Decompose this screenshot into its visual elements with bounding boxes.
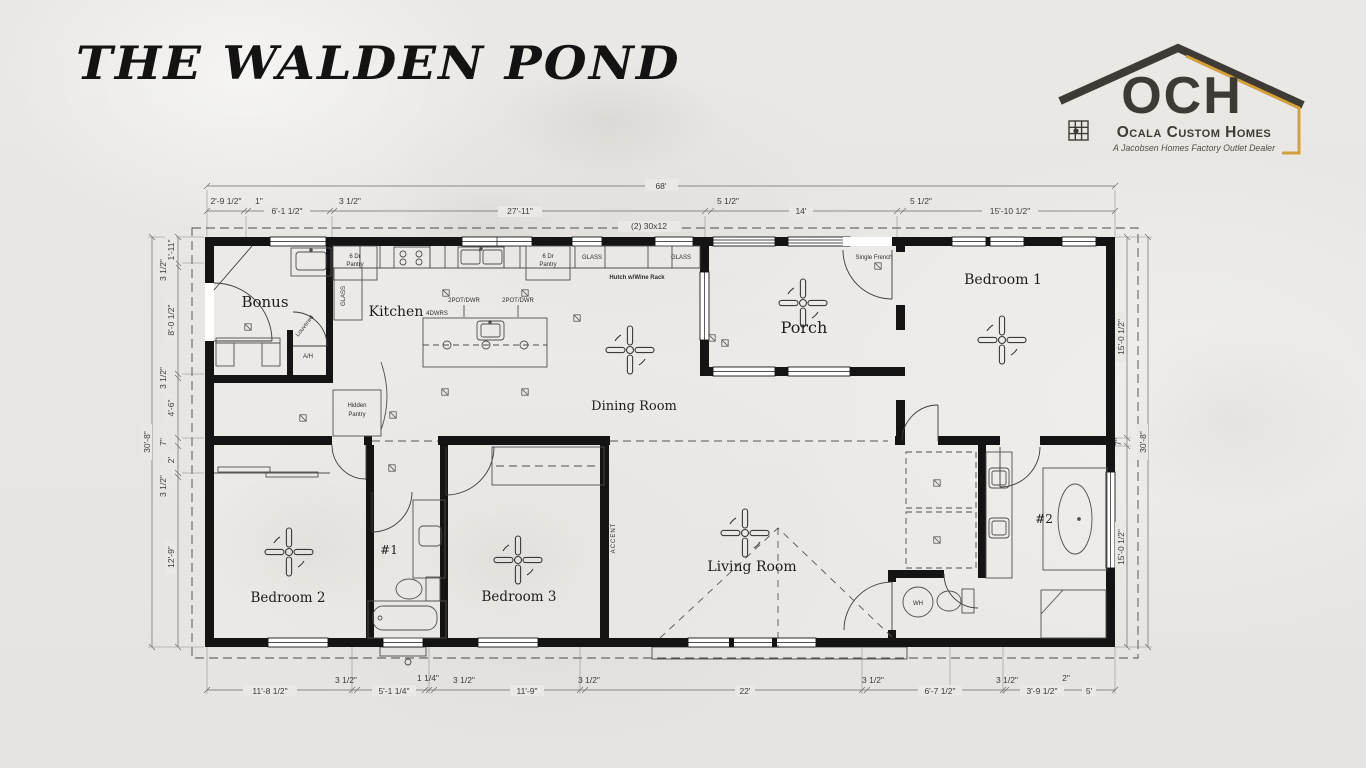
label-accent-wall: ACCENT xyxy=(611,523,617,554)
dim-left-4: 4'-6" xyxy=(166,400,176,417)
dim-bottom-2: 5'-1 1/4" xyxy=(378,686,409,696)
dim-bottom-1: 3 1/2" xyxy=(335,675,357,685)
dim-bottom-3: 1 1/4" xyxy=(417,673,439,683)
dim-top-3: 3 1/2" xyxy=(339,196,361,206)
floor-plan: 68' (2) 30x12 2'-9 1/2" 1" 6'-1 1/2" 3 1… xyxy=(0,0,1366,768)
dim-bottom-12: 2" xyxy=(1062,673,1070,683)
label-pot-dwr-1: 2POT/DWR xyxy=(448,298,480,304)
dim-bottom-5: 11'-9" xyxy=(516,686,537,696)
dim-left-7: 3 1/2" xyxy=(158,475,168,497)
label-pantry-right-2: Pantry xyxy=(539,262,556,268)
room-label-porch: Porch xyxy=(781,318,828,337)
room-label-bath1: #1 xyxy=(380,543,398,557)
dim-bottom-9: 6'-7 1/2" xyxy=(924,686,955,696)
label-glass-2: GLASS xyxy=(671,255,691,261)
dim-right-1: 7" xyxy=(1113,438,1123,446)
dim-bottom-4: 3 1/2" xyxy=(453,675,475,685)
dim-bottom-8: 3 1/2" xyxy=(862,675,884,685)
label-air-handler: A/H xyxy=(303,354,313,360)
label-hutch: Hutch w/Wine Rack xyxy=(609,275,665,281)
dim-top-2: 6'-1 1/2" xyxy=(271,206,302,216)
dim-top-8: 15'-10 1/2" xyxy=(990,206,1031,216)
dim-overall-left: 30'-8" xyxy=(142,431,152,453)
room-label-bedroom2: Bedroom 2 xyxy=(251,590,326,606)
dim-bottom-7: 22' xyxy=(739,686,750,696)
label-pot-dwr-2: 2POT/DWR xyxy=(502,298,534,304)
dim-left-8: 12'-9" xyxy=(166,546,176,568)
dim-right-0: 15'-0 1/2" xyxy=(1116,319,1126,355)
room-label-dining: Dining Room xyxy=(591,399,677,414)
dim-top-6: 14' xyxy=(795,206,806,216)
dim-left-2: 8'-0 1/2" xyxy=(166,304,176,335)
label-pantry-right-1: 6 Dr xyxy=(542,254,553,260)
label-glass-vertical: GLASS xyxy=(341,286,347,306)
dim-right-2: 15'-0 1/2" xyxy=(1116,529,1126,565)
dim-overall-width: 68' xyxy=(655,181,666,191)
dim-left-0: 1'-11" xyxy=(166,239,176,260)
dim-left-1: 3 1/2" xyxy=(158,259,168,281)
label-hidden-pantry-1: Hidden xyxy=(347,403,366,409)
dim-bottom-10: 3 1/2" xyxy=(996,675,1018,685)
room-label-kitchen: Kitchen xyxy=(369,304,424,320)
dim-bottom-13: 5' xyxy=(1086,686,1093,696)
dim-top-1: 1" xyxy=(255,196,263,206)
room-label-bath2: #2 xyxy=(1035,512,1053,526)
label-4dwrs: 4DWRS xyxy=(426,311,448,317)
page: { "page": { "title": "THE WALDEN POND" }… xyxy=(0,0,1366,768)
label-glass-1: GLASS xyxy=(582,255,602,261)
dim-left-6: 2' xyxy=(166,456,176,463)
room-label-bedroom3: Bedroom 3 xyxy=(482,589,557,605)
dim-top-7: 5 1/2" xyxy=(910,196,932,206)
dim-left-3: 3 1/2" xyxy=(158,367,168,389)
label-water-heater: WH xyxy=(913,601,923,607)
dim-top-0: 2'-9 1/2" xyxy=(210,196,241,206)
room-label-bonus: Bonus xyxy=(241,293,288,311)
label-single-french: Single French xyxy=(855,255,892,261)
dim-top-5: 5 1/2" xyxy=(717,196,739,206)
room-label-bedroom1: Bedroom 1 xyxy=(964,272,1042,288)
dim-bottom-11: 3'-9 1/2" xyxy=(1026,686,1057,696)
dim-left-5: 7" xyxy=(158,438,168,446)
dim-window-note: (2) 30x12 xyxy=(631,221,667,231)
dim-overall-right: 30'-8" xyxy=(1138,431,1148,453)
dim-bottom-0: 11'-8 1/2" xyxy=(252,686,287,696)
label-pantry-left-2: Pantry xyxy=(346,262,363,268)
dim-bottom-6: 3 1/2" xyxy=(578,675,600,685)
label-pantry-left-1: 6 Dr xyxy=(349,254,360,260)
label-hidden-pantry-2: Pantry xyxy=(348,412,365,418)
room-label-living: Living Room xyxy=(707,559,796,575)
dim-top-4: 27'-11" xyxy=(507,206,533,216)
